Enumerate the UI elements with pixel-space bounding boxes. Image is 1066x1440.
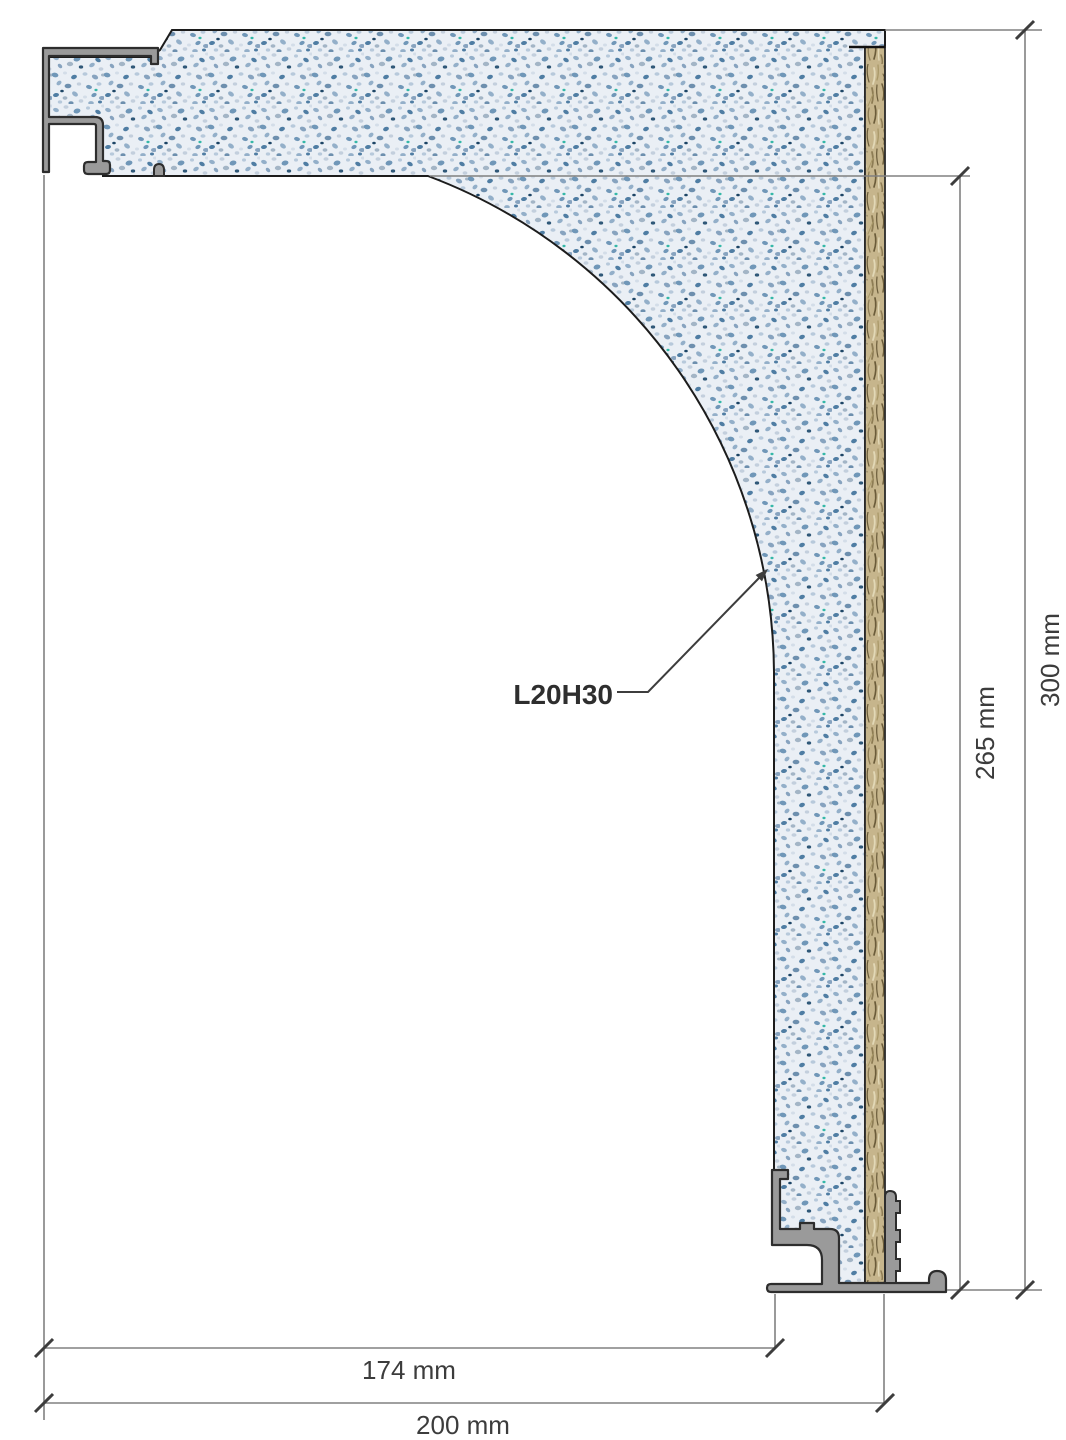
slab-kerf-hook — [154, 164, 164, 176]
part-label: L20H30 — [513, 679, 613, 710]
dim-label-bottom-outer: 200 mm — [416, 1410, 510, 1440]
wood-wool-board — [865, 47, 885, 1284]
drawing-canvas: L20H30 174 mm 200 mm 265 mm 300 mm — [0, 0, 1066, 1440]
anchor-strip — [885, 1191, 900, 1283]
section-drawing: L20H30 174 mm 200 mm 265 mm 300 mm — [0, 0, 1066, 1440]
dim-label-bottom-inner: 174 mm — [362, 1355, 456, 1385]
terrazzo-cove-body — [49, 30, 885, 1284]
dim-label-right-outer: 300 mm — [1035, 613, 1065, 707]
leader-line — [617, 578, 759, 692]
dim-label-right-inner: 265 mm — [970, 686, 1000, 780]
